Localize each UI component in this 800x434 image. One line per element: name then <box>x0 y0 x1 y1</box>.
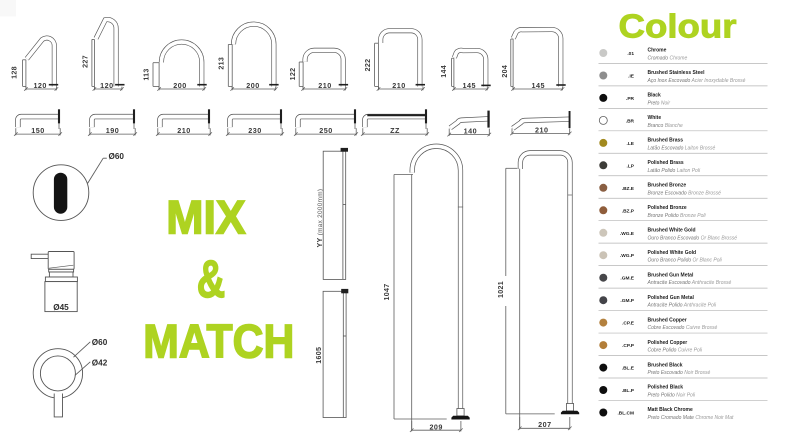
svg-text:Latão Polido Laiton Poli: Latão Polido Laiton Poli <box>648 168 701 174</box>
svg-text:210: 210 <box>318 81 332 90</box>
svg-text:MATCH: MATCH <box>143 315 294 368</box>
svg-text:Cromado Chrome: Cromado Chrome <box>648 56 688 62</box>
svg-text:.LP: .LP <box>627 163 635 169</box>
svg-text:.BL.P: .BL.P <box>622 388 635 394</box>
svg-text:Ouro Branco Escovado Or Blanc: Ouro Branco Escovado Or Blanc Brossé <box>648 235 738 241</box>
svg-text:.BL.E: .BL.E <box>622 366 635 372</box>
svg-text:Preto Noir: Preto Noir <box>648 100 671 106</box>
svg-text:207: 207 <box>538 420 552 429</box>
svg-text:227: 227 <box>81 55 89 68</box>
svg-text:Polished Copper: Polished Copper <box>648 340 688 346</box>
svg-text:Bronze Polido Bronze Poli: Bronze Polido Bronze Poli <box>648 213 707 219</box>
svg-text:140: 140 <box>464 126 478 135</box>
svg-text:Polished Black: Polished Black <box>648 385 684 391</box>
svg-text:.PR: .PR <box>626 96 635 102</box>
svg-text:1021: 1021 <box>497 281 505 298</box>
svg-text:Brushed Stainless Steel: Brushed Stainless Steel <box>648 70 706 76</box>
svg-text:Antracite Polido Anthracite Po: Antracite Polido Anthracite Poli <box>647 303 717 309</box>
svg-text:.WG.P: .WG.P <box>620 253 635 259</box>
svg-text:.BZ.E: .BZ.E <box>622 186 635 192</box>
svg-text:.CP.P: .CP.P <box>622 343 635 349</box>
svg-text:Brushed Bronze: Brushed Bronze <box>648 183 687 189</box>
svg-text:.BZ.P: .BZ.P <box>622 208 635 214</box>
svg-text:122: 122 <box>289 68 297 81</box>
svg-text:.GM.E: .GM.E <box>620 276 634 282</box>
svg-text:Brushed White Gold: Brushed White Gold <box>648 228 696 234</box>
svg-text:128: 128 <box>10 66 18 79</box>
svg-text:Cobre Polido Cuivre Poli: Cobre Polido Cuivre Poli <box>648 348 703 354</box>
svg-text:Brushed Brass: Brushed Brass <box>648 138 684 144</box>
svg-text:MIX: MIX <box>166 190 246 243</box>
svg-text:120: 120 <box>33 81 47 90</box>
svg-text:222: 222 <box>364 59 372 72</box>
svg-text:.BR: .BR <box>626 118 635 124</box>
svg-text:Preto Polido Noir Poli: Preto Polido Noir Poli <box>648 393 696 399</box>
svg-text:Chrome: Chrome <box>648 48 667 54</box>
svg-text:250: 250 <box>319 126 333 135</box>
svg-text:Brushed Black: Brushed Black <box>648 362 683 368</box>
svg-text:210: 210 <box>535 125 549 134</box>
svg-text:Colour: Colour <box>619 8 737 45</box>
svg-text:Aço Inox Escovado Acier Inoxyd: Aço Inox Escovado Acier Inoxydable Bross… <box>647 78 746 84</box>
svg-text:.GM.P: .GM.P <box>620 298 634 304</box>
svg-text:&: & <box>197 250 226 309</box>
svg-text:.LE: .LE <box>627 141 635 147</box>
svg-text:150: 150 <box>31 126 45 135</box>
svg-text:190: 190 <box>106 126 120 135</box>
svg-text:ZZ: ZZ <box>390 126 400 135</box>
svg-text:213: 213 <box>218 57 226 70</box>
svg-text:Ø42: Ø42 <box>92 358 108 367</box>
svg-text:Cobre Escovado Cuivre Brossé: Cobre Escovado Cuivre Brossé <box>648 325 718 331</box>
svg-text:1047: 1047 <box>383 284 391 301</box>
svg-text:210: 210 <box>392 81 406 90</box>
svg-text:Polished Brass: Polished Brass <box>648 160 684 166</box>
svg-text:Brushed Gun Metal: Brushed Gun Metal <box>648 272 694 278</box>
svg-text:.BL.CM: .BL.CM <box>617 411 634 417</box>
svg-text:.WG.E: .WG.E <box>620 231 635 237</box>
svg-text:Matt Black Chrome: Matt Black Chrome <box>648 407 694 413</box>
svg-text:Antracite Escovado Anthracite: Antracite Escovado Anthracite Brossé <box>647 280 732 286</box>
svg-text:145: 145 <box>463 81 477 90</box>
svg-text:200: 200 <box>246 81 260 90</box>
svg-text:Brushed Copper: Brushed Copper <box>648 317 687 323</box>
svg-text:Polished Bronze: Polished Bronze <box>648 205 687 211</box>
svg-text:Black: Black <box>648 93 662 99</box>
svg-text:145: 145 <box>532 81 546 90</box>
svg-text:144: 144 <box>440 65 448 78</box>
svg-text:.01: .01 <box>627 51 634 57</box>
svg-text:120: 120 <box>100 81 114 90</box>
svg-text:Ø60: Ø60 <box>109 152 125 161</box>
svg-text:Ø45: Ø45 <box>53 303 69 312</box>
svg-text:Preto Cromado Mate Chrome Noir: Preto Cromado Mate Chrome Noir Mat <box>648 415 734 421</box>
svg-text:113: 113 <box>142 68 150 80</box>
svg-text:.IE: .IE <box>628 74 635 80</box>
svg-text:YY (max 2000mm): YY (max 2000mm) <box>316 189 324 248</box>
svg-text:Ø60: Ø60 <box>92 338 108 347</box>
svg-text:Preto Escovado Noir Brossé: Preto Escovado Noir Brossé <box>648 370 711 376</box>
svg-text:230: 230 <box>248 126 262 135</box>
svg-text:.CP.E: .CP.E <box>622 321 635 327</box>
svg-text:1605: 1605 <box>315 347 323 364</box>
svg-text:Branco Blanche: Branco Blanche <box>648 123 684 129</box>
svg-text:204: 204 <box>501 65 509 78</box>
svg-text:Ouro Branco Polido Or Blanc Po: Ouro Branco Polido Or Blanc Poli <box>648 258 723 264</box>
svg-text:Polished White Gold: Polished White Gold <box>648 250 697 256</box>
svg-text:Polished Gun Metal: Polished Gun Metal <box>648 295 695 301</box>
svg-text:210: 210 <box>177 126 191 135</box>
svg-text:200: 200 <box>173 81 187 90</box>
svg-text:Latão Escovado Laiton Brossé: Latão Escovado Laiton Brossé <box>648 145 716 151</box>
svg-text:Bronze Escovado Bronze Brossé: Bronze Escovado Bronze Brossé <box>648 190 722 196</box>
svg-text:White: White <box>648 115 662 121</box>
svg-text:209: 209 <box>429 422 443 431</box>
